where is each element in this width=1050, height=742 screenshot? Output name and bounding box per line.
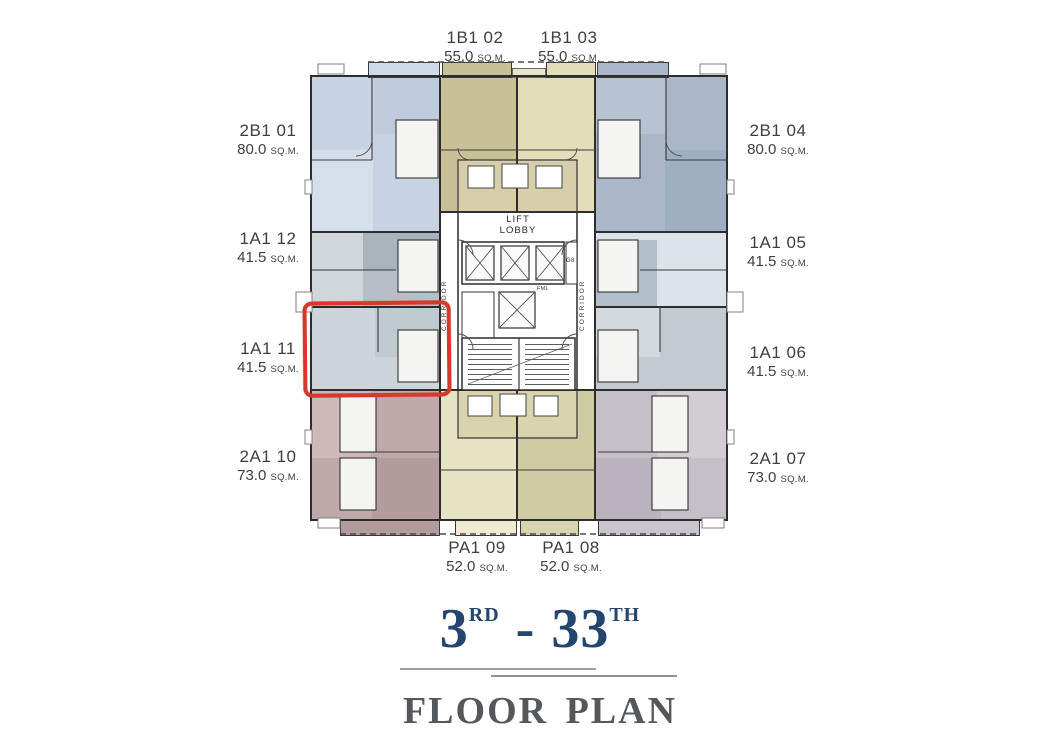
service-cluster-top bbox=[458, 160, 577, 212]
unit-label-2a1-07: 2A1 07 73.0 SQ.M. bbox=[747, 449, 809, 486]
room-shade bbox=[657, 390, 727, 458]
divider-line-upper bbox=[400, 668, 596, 670]
balcony bbox=[520, 520, 579, 536]
floor-to-suffix: TH bbox=[609, 604, 640, 626]
fireman-lift bbox=[462, 292, 535, 338]
balcony bbox=[340, 520, 440, 536]
room-shade bbox=[372, 458, 440, 520]
unit-label-2a1-10: 2A1 10 73.0 SQ.M. bbox=[237, 447, 299, 484]
fireman-lift-label: FML bbox=[537, 286, 549, 292]
unit-label-2b1-04: 2B1 04 80.0 SQ.M. bbox=[747, 121, 809, 158]
floor-from: 3 bbox=[440, 598, 469, 660]
stair-treads bbox=[468, 344, 512, 386]
room-shade bbox=[665, 150, 727, 232]
room-shade bbox=[375, 76, 440, 134]
unit-label-pa1-08: PA1 08 52.0 SQ.M. bbox=[540, 538, 602, 575]
lift-car-x bbox=[466, 246, 564, 280]
unit-label-1b1-03: 1B1 03 55.0 SQ.M. bbox=[538, 28, 600, 65]
unit-label-1a1-05: 1A1 05 41.5 SQ.M. bbox=[747, 233, 809, 270]
floor-from-suffix: RD bbox=[469, 604, 500, 626]
floor-to: 33 bbox=[551, 598, 609, 660]
floor-plan-title: FLOOR PLAN bbox=[403, 689, 677, 733]
unit-label-1a1-12: 1A1 12 41.5 SQ.M. bbox=[237, 229, 299, 266]
unit-label-1a1-06: 1A1 06 41.5 SQ.M. bbox=[747, 343, 809, 380]
balcony bbox=[512, 68, 546, 78]
balcony bbox=[598, 520, 700, 536]
lift-lobby-label: LIFT LOBBY bbox=[480, 214, 556, 236]
floor-plan-sheet: LIFT LOBBY CORRIDOR CORRIDOR G8 FML 2B1 … bbox=[0, 0, 1050, 742]
service-cluster-bottom bbox=[458, 390, 577, 438]
room-shade bbox=[311, 232, 363, 307]
stair-treads bbox=[525, 344, 569, 386]
room-shade bbox=[595, 76, 665, 134]
room-shade bbox=[311, 390, 371, 458]
floor-range-title: 3RD-33TH bbox=[403, 586, 677, 658]
corridor-right-label: CORRIDOR bbox=[579, 250, 595, 360]
divider-line-lower bbox=[491, 675, 677, 677]
room-g8-label: G8 bbox=[566, 258, 575, 264]
room-shade bbox=[311, 150, 373, 232]
balcony bbox=[455, 520, 517, 536]
room-shade bbox=[595, 307, 660, 357]
unit-label-1a1-11: 1A1 11 41.5 SQ.M. bbox=[237, 339, 299, 376]
highlight-box-unit-1a1-11 bbox=[303, 300, 452, 398]
room-shade bbox=[595, 240, 657, 307]
unit-label-pa1-09: PA1 09 52.0 SQ.M. bbox=[446, 538, 508, 575]
lift-car bbox=[466, 246, 564, 280]
unit-label-2b1-01: 2B1 01 80.0 SQ.M. bbox=[237, 121, 299, 158]
room-shade bbox=[363, 232, 440, 270]
range-dash: - bbox=[516, 600, 536, 658]
unit-label-1b1-02: 1B1 02 55.0 SQ.M. bbox=[444, 28, 506, 65]
balcony bbox=[368, 62, 440, 78]
lift-bank bbox=[462, 242, 577, 284]
balcony bbox=[597, 62, 669, 78]
footer: 3RD-33TH FLOOR PLAN bbox=[403, 586, 677, 733]
room-shade bbox=[595, 458, 661, 520]
